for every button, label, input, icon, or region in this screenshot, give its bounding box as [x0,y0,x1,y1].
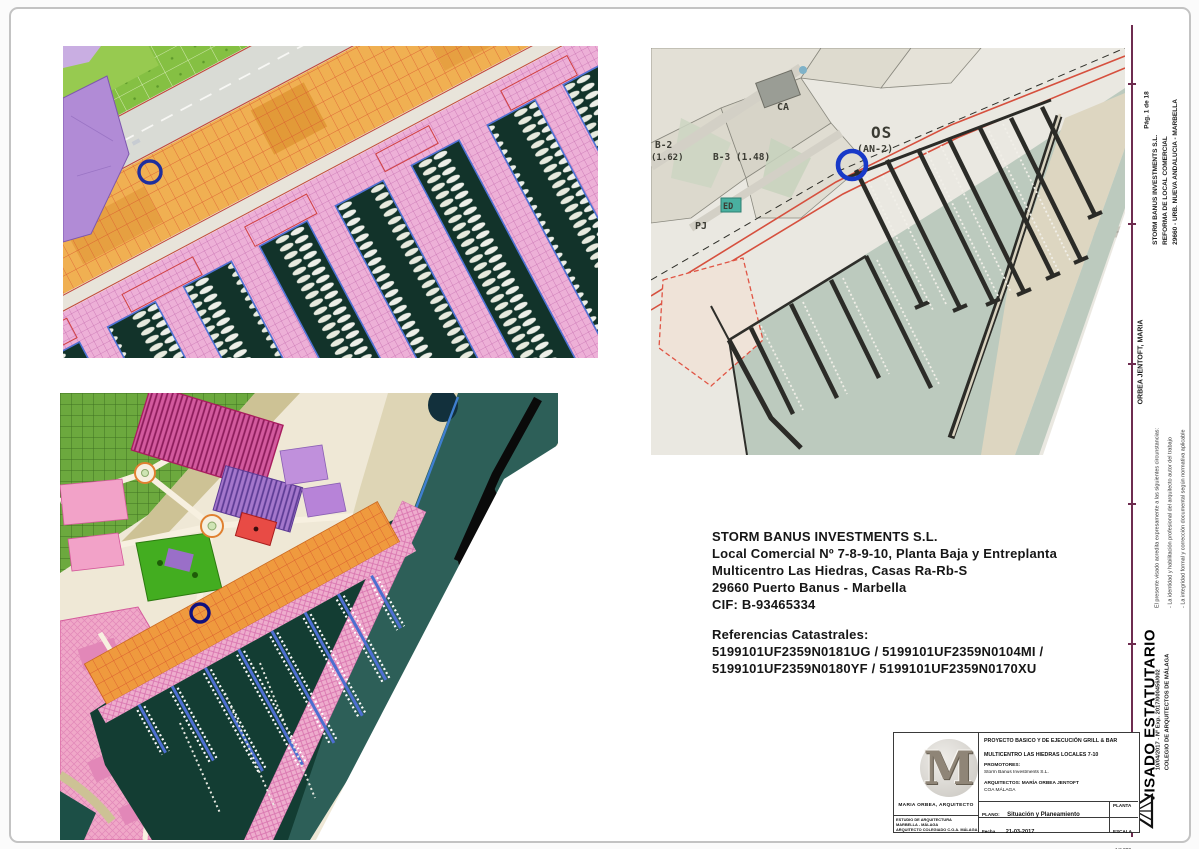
plan-label-ca: CA [777,102,789,113]
plano-cell: PLANO: Situación y Planeamiento [982,803,1108,821]
plan-label-pj: PJ [695,221,707,232]
map-cadastral-plan: CA B-2 (1.62) B-3 (1.48) OS (AN-2) ED PJ [651,48,1125,455]
fecha-cell: Fecha 21-03-2017 [982,820,1108,838]
visa-disclaimer: El presente visado acredita expresamente… [1152,428,1191,608]
plano-label: PLANO: [982,812,1000,817]
ruler-tick [1128,223,1136,225]
ruler-tick [1128,503,1136,505]
project-title: PROYECTO BASICO Y DE EJECUCIÓN GRILL & B… [984,738,1136,745]
page-number-label: Pág. 1 de 18 [1144,91,1151,129]
document-page: CA B-2 (1.62) B-3 (1.48) OS (AN-2) ED PJ… [0,0,1199,849]
planta-label: PLANTA [1113,803,1131,810]
map-cadastral-aerial [63,46,598,358]
logo-caption: MARIA ORBEA, ARQUITECTO [894,803,978,808]
margin-architect-name: ORBEA JENTOFT, MARIA [1138,320,1145,405]
promoters-value: Storm Banus Investments S.L. [984,770,1136,777]
escala-cell: ESCALA 1:2.000 [1113,820,1139,849]
architects-label: ARQUITECTOS: MARÍA ORBEA JENTOFT [984,781,1136,788]
ruler-tick [1128,363,1136,365]
fecha-label: Fecha [982,829,995,834]
owner-info-block: STORM BANUS INVESTMENTS S.L. Local Comer… [712,528,1057,677]
ruler-tick [1128,83,1136,85]
cadastral-heading: Referencias Catastrales: [712,626,1057,643]
owner-address-1: Local Comercial Nº 7-8-9-10, Planta Baja… [712,545,1057,562]
logo-letter-m: M [924,745,975,791]
logo-cell: M MARIA ORBEA, ARQUITECTO [894,733,978,815]
cadastral-refs-1: 5199101UF2359N0181UG / 5199101UF2359N010… [712,643,1057,660]
plan-label-b2: B-2 [655,140,672,151]
margin-separator-line [1131,25,1133,837]
title-block: M MARIA ORBEA, ARQUITECTO ESTUDIO DE ARQ… [893,732,1140,833]
owner-cif: CIF: B-93465334 [712,596,1057,613]
cadastral-refs-2: 5199101UF2359N0180YF / 5199101UF2359N017… [712,660,1057,677]
plan-label-os: OS [871,123,892,142]
plano-value: Situación y Planeamiento [1007,812,1080,818]
owner-address-2: Multicentro Las Hiedras, Casas Ra-Rb-S [712,562,1057,579]
architects-ref: COA MÁLAGA [984,788,1136,795]
plan-label-ed: ED [723,202,733,212]
map-zoning-plan [60,393,558,840]
studio-address: ESTUDIO DE ARQUITECTURA MARBELLA - MÁLAG… [896,818,978,833]
margin-project-title: STORM BANUS INVESTMENTS S.L. REFORMA DE … [1151,99,1181,245]
project-info-cell: PROYECTO BASICO Y DE EJECUCIÓN GRILL & B… [984,738,1136,795]
ruler-tick [1128,643,1136,645]
plan-label-b3: B-3 (1.48) [713,152,770,163]
aerial-band-layers [63,46,598,358]
fecha-value: 21-03-2017 [1006,829,1035,835]
architect-logo: M [920,739,978,797]
visa-stamp-details: 10/04/2017 - Nº Exp. 2017/000456/002 COL… [1155,654,1172,771]
owner-address-3: 29660 Puerto Banus - Marbella [712,579,1057,596]
escala-label: ESCALA [1113,829,1132,834]
plan-label-b2-val: (1.62) [651,153,684,163]
promoters-label: PROMOTORES: [984,763,1136,770]
owner-company: STORM BANUS INVESTMENTS S.L. [712,528,1057,545]
project-location: MULTICENTRO LAS HIEDRAS LOCALES 7-10 [984,752,1136,759]
